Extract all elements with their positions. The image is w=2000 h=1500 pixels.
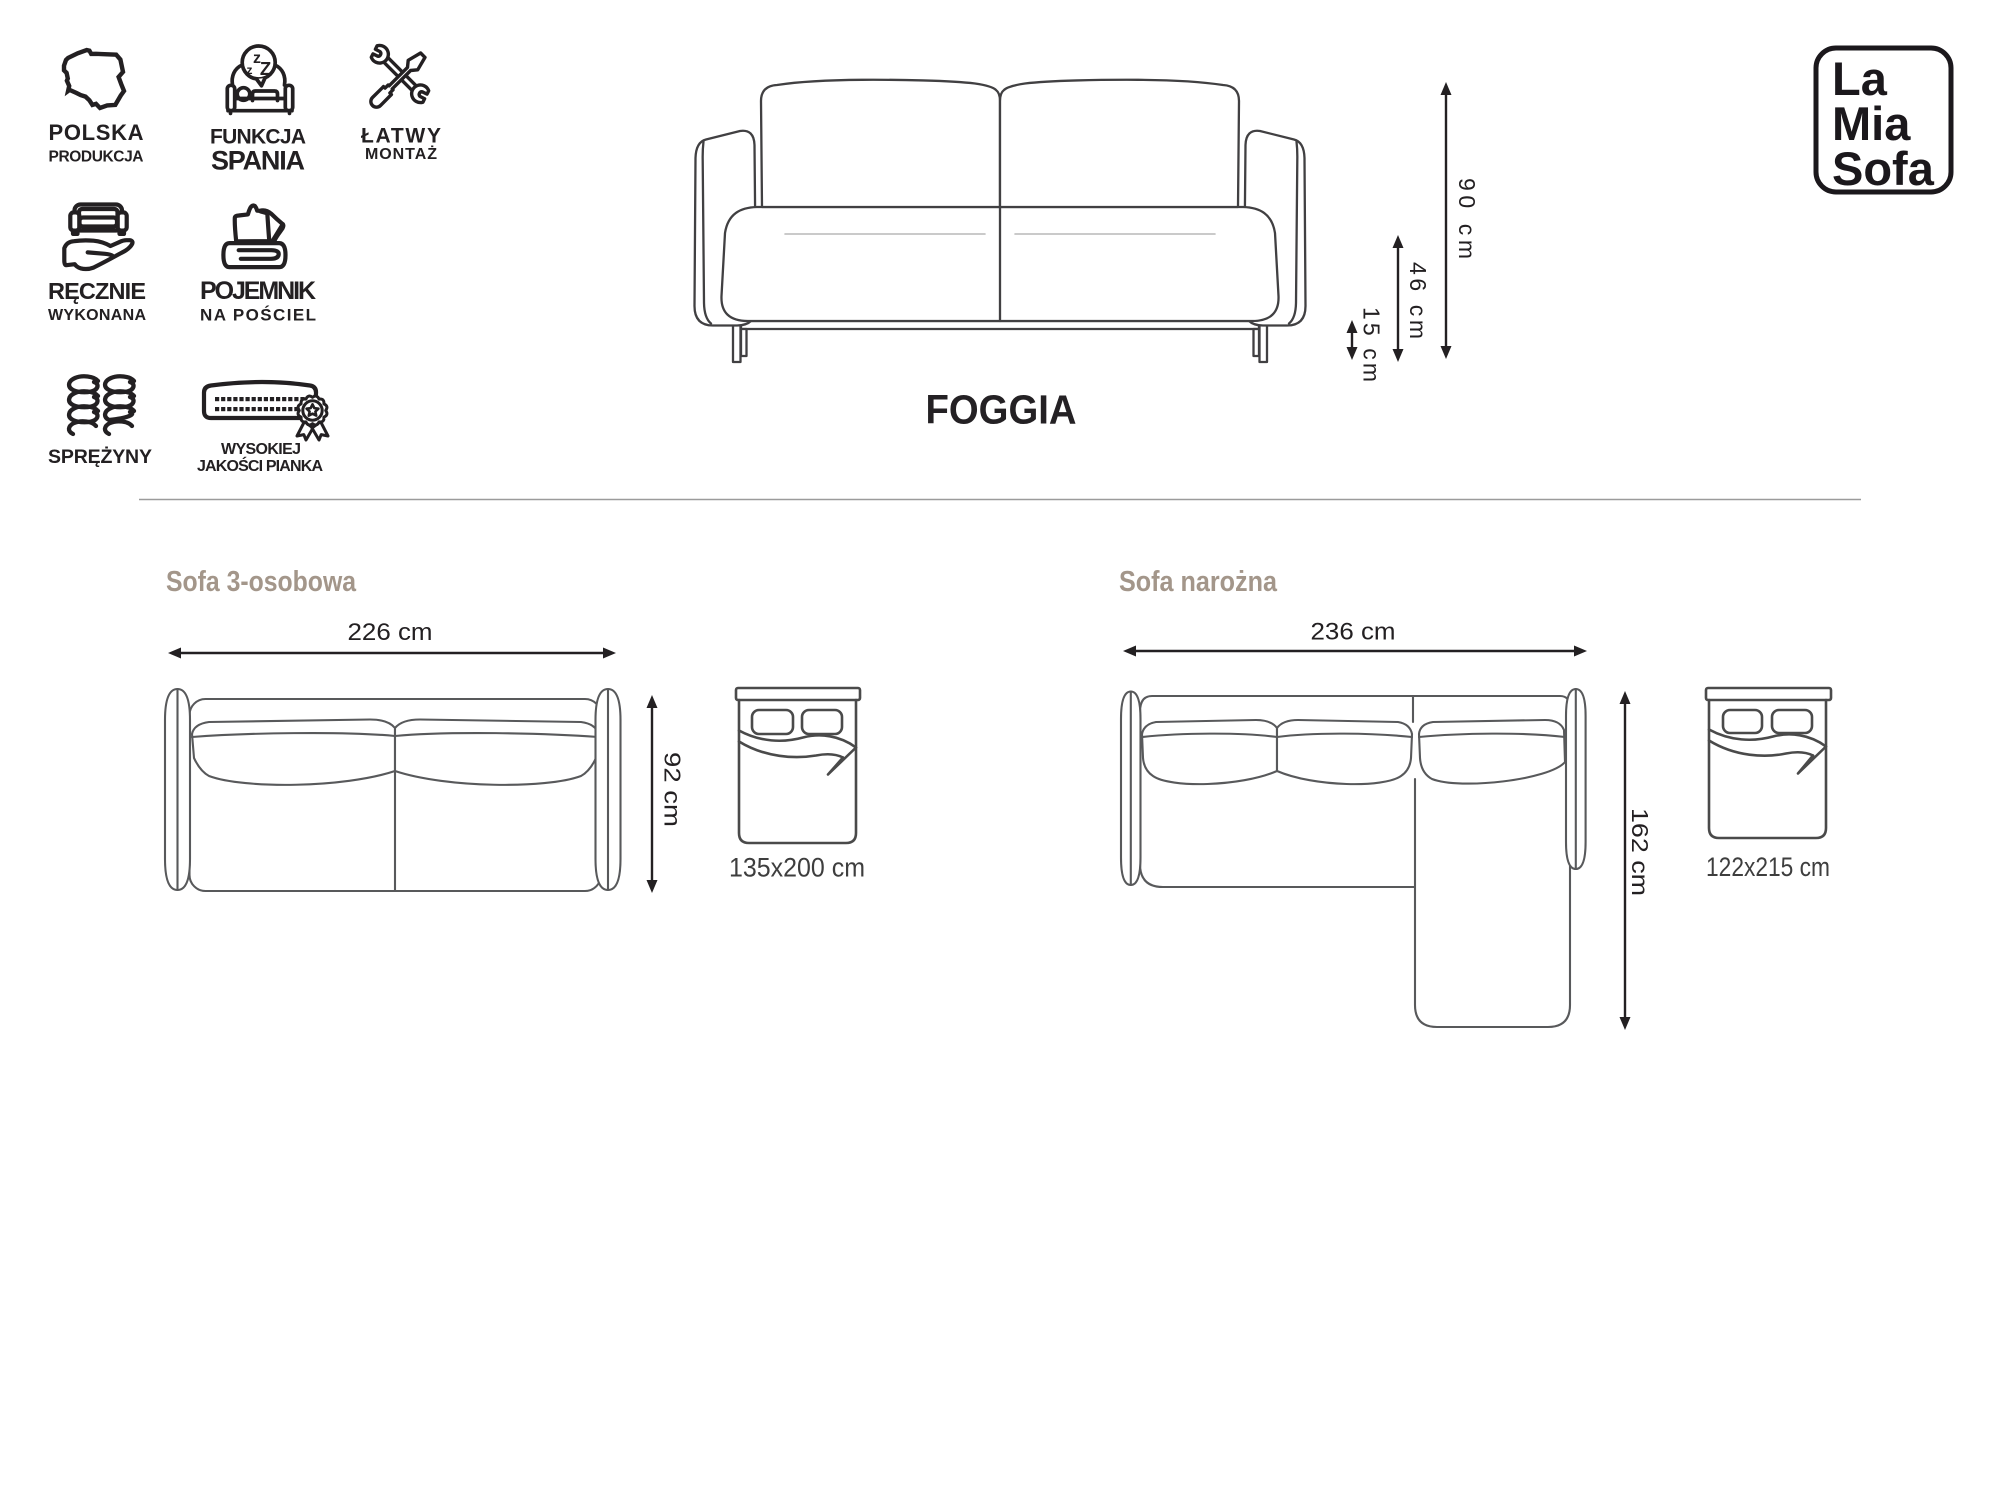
svg-text:162 cm: 162 cm: [1627, 808, 1653, 896]
svg-text:WYSOKIEJ: WYSOKIEJ: [221, 441, 301, 458]
svg-text:15 cm: 15 cm: [1359, 307, 1385, 382]
svg-text:POJEMNIK: POJEMNIK: [200, 277, 316, 305]
svg-text:Z: Z: [260, 58, 271, 79]
svg-text:122x215 cm: 122x215 cm: [1706, 852, 1830, 882]
svg-text:Sofa 3-osobowa: Sofa 3-osobowa: [166, 566, 357, 598]
svg-text:90 cm: 90 cm: [1454, 178, 1480, 259]
svg-text:236 cm: 236 cm: [1311, 619, 1396, 646]
svg-text:135x200 cm: 135x200 cm: [729, 853, 865, 883]
svg-text:46 cm: 46 cm: [1405, 262, 1431, 339]
svg-text:Sofa narożna: Sofa narożna: [1119, 566, 1278, 598]
svg-text:NA POŚCIEL: NA POŚCIEL: [200, 305, 316, 324]
svg-text:92 cm: 92 cm: [660, 752, 686, 827]
svg-text:FOGGIA: FOGGIA: [926, 387, 1077, 433]
svg-text:Sofa: Sofa: [1832, 142, 1935, 195]
svg-text:JAKOŚCI PIANKA: JAKOŚCI PIANKA: [197, 456, 323, 475]
svg-text:ŁATWY: ŁATWY: [361, 125, 441, 148]
svg-text:RĘCZNIE: RĘCZNIE: [48, 278, 146, 304]
svg-text:z: z: [247, 63, 253, 77]
svg-text:WYKONANA: WYKONANA: [48, 307, 146, 324]
svg-text:SPANIA: SPANIA: [211, 146, 305, 176]
svg-text:SPRĘŻYNY: SPRĘŻYNY: [48, 445, 152, 468]
svg-text:MONTAŻ: MONTAŻ: [365, 145, 437, 163]
svg-text:POLSKA: POLSKA: [49, 120, 144, 145]
svg-text:PRODUKCJA: PRODUKCJA: [49, 149, 144, 166]
svg-text:226 cm: 226 cm: [348, 619, 433, 646]
